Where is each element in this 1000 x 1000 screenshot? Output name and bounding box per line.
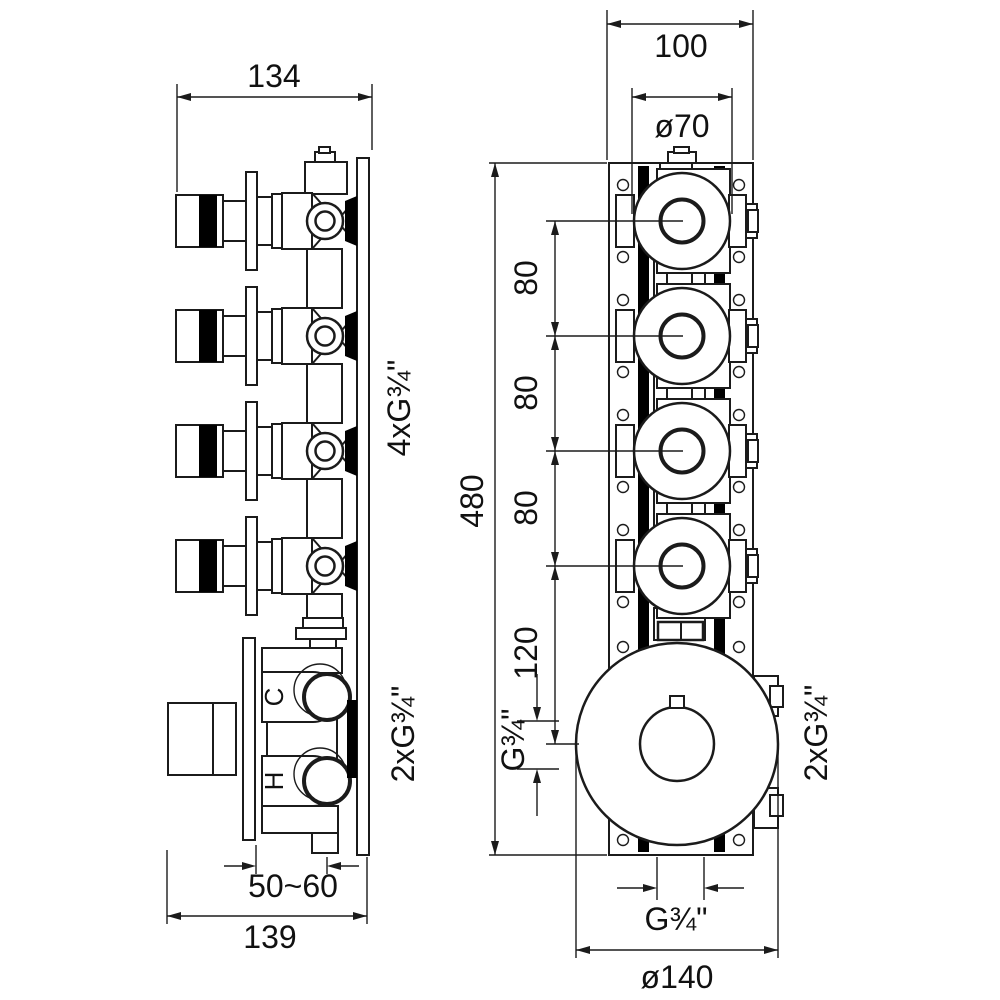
side-tab-right	[729, 425, 746, 477]
technical-drawing-page: C H 134 50~60 13	[0, 0, 1000, 1000]
side-tab-right	[729, 310, 746, 362]
wall-plate-side	[357, 158, 369, 855]
top-fitting-nut-front	[674, 147, 689, 153]
cold-port-label: C	[259, 688, 289, 707]
thermostat-side: C H	[168, 638, 357, 853]
dim-body-width-text: 100	[654, 28, 707, 64]
cold-port-circle	[304, 674, 350, 720]
valve-installation-diagram: C H 134 50~60 13	[0, 0, 1000, 1000]
dim-side-port: G¾"	[495, 674, 559, 816]
coupling-flange	[296, 628, 346, 639]
side-port-label: G¾"	[495, 709, 531, 772]
thermostat-seal-block	[347, 700, 357, 778]
dim-bottom-port: G¾"	[617, 857, 744, 937]
dial-inner-circle	[640, 707, 714, 781]
coupling-stub	[310, 639, 336, 648]
outlet-ports-label-front: 2xG¾"	[798, 685, 834, 782]
dim-width-text: 134	[247, 58, 300, 94]
outlet-ports-label-side: 4xG¾"	[381, 360, 417, 457]
manifold-channel	[307, 594, 342, 618]
bottom-port-label: G¾"	[645, 901, 708, 937]
dim-total-height-text: 480	[454, 474, 490, 527]
dim-spacing-2-text: 80	[508, 375, 544, 411]
side-tab-right	[729, 540, 746, 592]
manifold-head-side	[305, 162, 347, 194]
dim-recess-depth-text: 50~60	[248, 868, 338, 904]
hot-port-label: H	[259, 772, 289, 791]
manifold-channel	[307, 364, 342, 423]
thermostat-body-top	[262, 648, 342, 673]
dim-dial-diameter-text: ø140	[641, 959, 714, 995]
thermostat-escutcheon	[243, 638, 255, 840]
side-nub-inner	[748, 555, 758, 577]
top-fitting-nut-side	[319, 147, 330, 153]
coupling-flange	[303, 618, 343, 628]
dim-spacing-3-text: 80	[508, 490, 544, 526]
manifold-channel	[307, 479, 342, 538]
front-view: 100 ø70 480	[454, 10, 834, 995]
manifold-channel	[307, 249, 342, 308]
side-view: C H 134 50~60 13	[167, 58, 421, 955]
dial-key-notch	[670, 696, 684, 708]
thermostat-knob-side	[168, 703, 236, 775]
dim-handle-diameter-text: ø70	[654, 108, 709, 144]
hot-port-circle	[304, 758, 350, 804]
dim-total-depth-text: 139	[243, 919, 296, 955]
dial-tab-upper-nub	[770, 686, 783, 707]
thermostat-body-bottom	[262, 806, 338, 833]
dim-spacing-1-text: 80	[508, 260, 544, 296]
side-nub-inner	[748, 210, 758, 232]
supply-ports-label-side: 2xG¾"	[385, 686, 421, 783]
dial-tab-lower-nub	[770, 795, 783, 816]
bottom-port-stub-side	[312, 833, 338, 853]
dim-spacing-4-text: 120	[508, 626, 544, 679]
side-nub-inner	[748, 325, 758, 347]
side-nub-inner	[748, 440, 758, 462]
